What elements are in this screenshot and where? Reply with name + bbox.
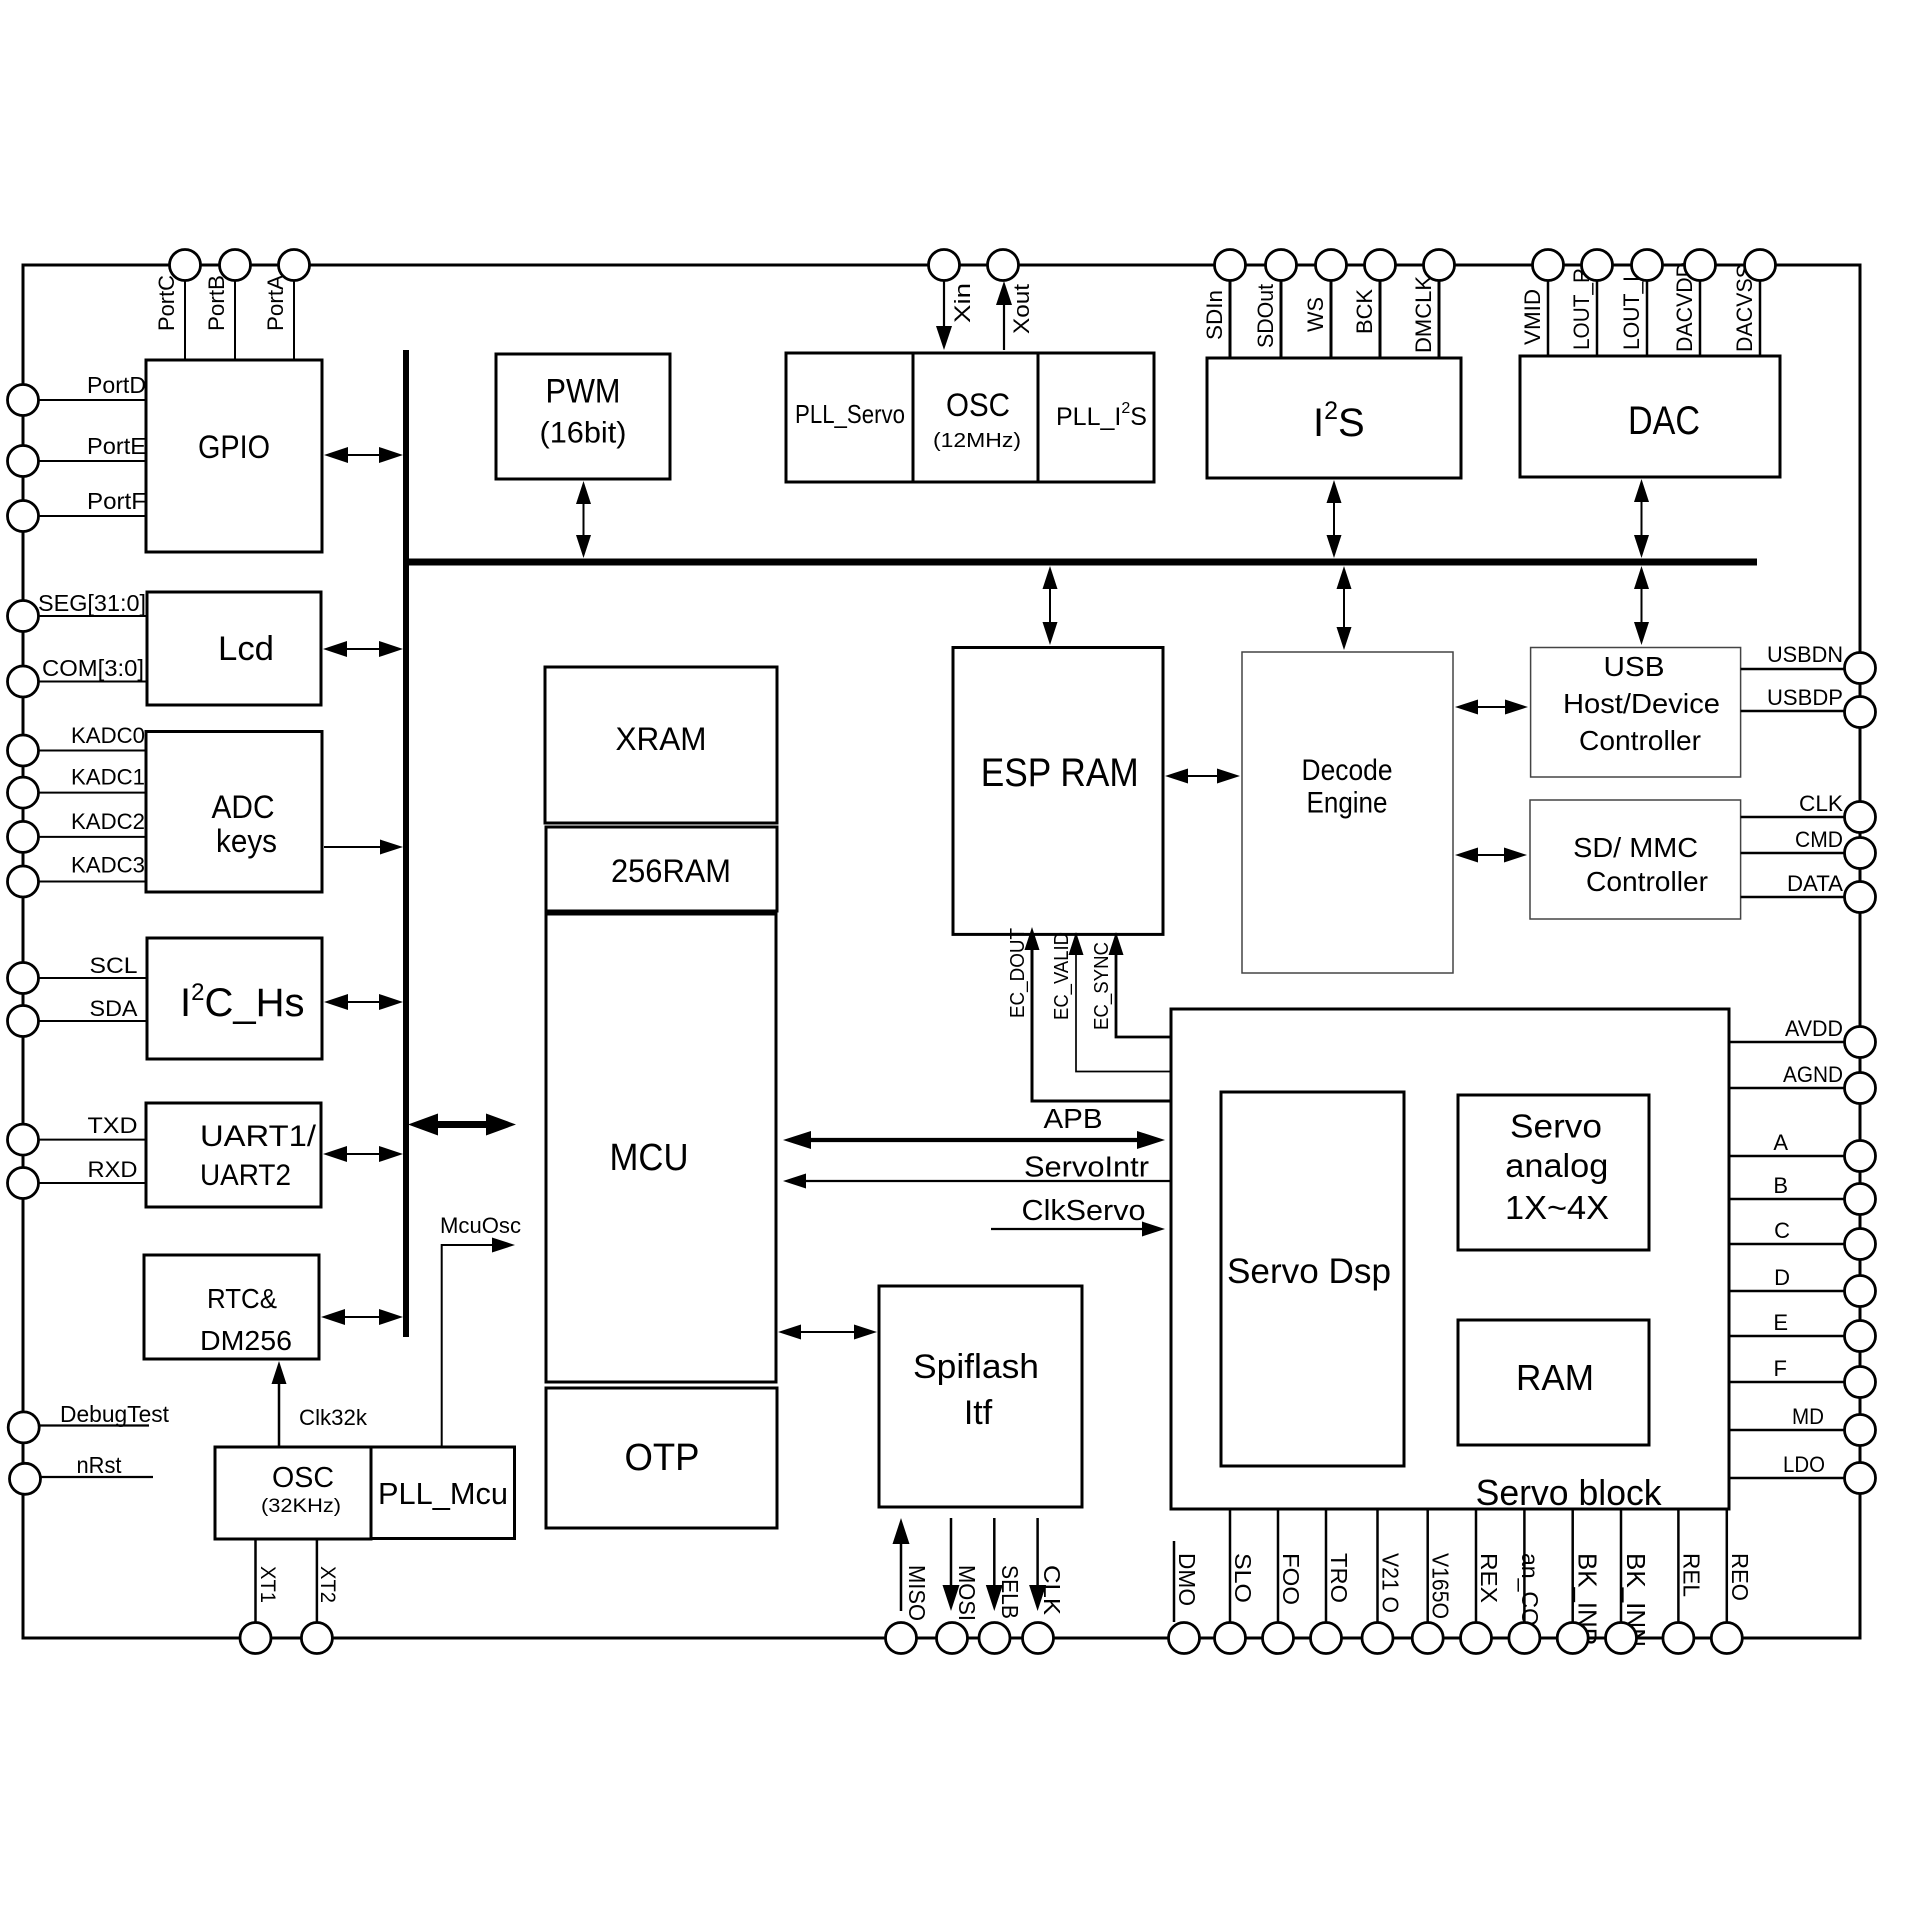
svg-text:F: F bbox=[1774, 1356, 1787, 1381]
svg-text:I2S: I2S bbox=[1313, 397, 1365, 445]
svg-text:PortF: PortF bbox=[87, 488, 146, 514]
svg-text:D: D bbox=[1774, 1265, 1790, 1290]
svg-text:OSC: OSC bbox=[272, 1462, 334, 1494]
svg-text:GPIO: GPIO bbox=[198, 429, 270, 465]
svg-text:an_CO: an_CO bbox=[1517, 1553, 1543, 1626]
svg-text:EC_VALID: EC_VALID bbox=[1051, 932, 1073, 1020]
svg-text:PortD: PortD bbox=[87, 372, 146, 398]
svg-text:RTC&: RTC& bbox=[207, 1283, 277, 1314]
svg-text:V21 O: V21 O bbox=[1378, 1553, 1404, 1613]
svg-text:1X~4X: 1X~4X bbox=[1505, 1189, 1609, 1226]
svg-text:(12MHz): (12MHz) bbox=[933, 430, 1021, 452]
svg-text:UART1/: UART1/ bbox=[200, 1120, 317, 1153]
svg-text:UART2: UART2 bbox=[200, 1159, 291, 1192]
svg-text:Xout: Xout bbox=[1009, 284, 1034, 334]
svg-text:TXD: TXD bbox=[88, 1113, 138, 1138]
svg-text:MISO: MISO bbox=[904, 1565, 930, 1621]
svg-text:KADC0: KADC0 bbox=[71, 723, 145, 748]
svg-text:CMD: CMD bbox=[1795, 827, 1843, 852]
svg-text:C: C bbox=[1774, 1218, 1790, 1243]
svg-text:PortB: PortB bbox=[204, 275, 229, 331]
svg-text:DMO: DMO bbox=[1174, 1553, 1200, 1606]
svg-text:A: A bbox=[1773, 1130, 1788, 1155]
svg-text:Host/Device: Host/Device bbox=[1563, 688, 1720, 719]
svg-text:PLL_I2S: PLL_I2S bbox=[1056, 400, 1147, 431]
svg-text:Decode: Decode bbox=[1302, 754, 1393, 787]
svg-text:256RAM: 256RAM bbox=[611, 853, 731, 889]
svg-text:PortE: PortE bbox=[87, 433, 146, 459]
svg-text:keys: keys bbox=[216, 823, 277, 859]
svg-text:MCU: MCU bbox=[610, 1137, 689, 1179]
svg-text:Clk32k: Clk32k bbox=[299, 1405, 368, 1430]
svg-text:APB: APB bbox=[1044, 1103, 1103, 1134]
svg-text:V165O: V165O bbox=[1428, 1553, 1454, 1619]
svg-text:REX: REX bbox=[1476, 1553, 1502, 1603]
svg-text:XRAM: XRAM bbox=[616, 721, 707, 757]
svg-text:REO: REO bbox=[1727, 1553, 1753, 1601]
svg-text:EC_DOUT: EC_DOUT bbox=[1007, 928, 1029, 1018]
svg-text:MD: MD bbox=[1792, 1404, 1824, 1429]
svg-text:DMCLK: DMCLK bbox=[1411, 276, 1436, 353]
svg-text:(32KHz): (32KHz) bbox=[261, 1496, 341, 1517]
svg-text:KADC3: KADC3 bbox=[71, 852, 145, 877]
svg-text:SD/ MMC: SD/ MMC bbox=[1573, 832, 1698, 863]
svg-text:PLL_Mcu: PLL_Mcu bbox=[378, 1476, 508, 1511]
svg-text:LOUT_L: LOUT_L bbox=[1619, 270, 1644, 350]
svg-text:FOO: FOO bbox=[1278, 1553, 1304, 1605]
svg-text:SCL: SCL bbox=[90, 953, 138, 978]
svg-text:SDA: SDA bbox=[90, 996, 138, 1021]
svg-text:TRO: TRO bbox=[1326, 1553, 1352, 1603]
svg-text:USB: USB bbox=[1604, 651, 1665, 682]
svg-text:SLO: SLO bbox=[1230, 1553, 1256, 1603]
svg-text:ClkServo: ClkServo bbox=[1022, 1195, 1146, 1227]
svg-text:(16bit): (16bit) bbox=[540, 417, 627, 450]
svg-text:ESP RAM: ESP RAM bbox=[981, 751, 1139, 795]
svg-text:Itf: Itf bbox=[964, 1394, 993, 1432]
svg-text:MOSI: MOSI bbox=[954, 1565, 980, 1621]
svg-text:Controller: Controller bbox=[1586, 866, 1708, 897]
svg-text:McuOsc: McuOsc bbox=[440, 1213, 521, 1238]
svg-text:Engine: Engine bbox=[1307, 787, 1388, 820]
svg-text:XT1: XT1 bbox=[256, 1566, 279, 1603]
svg-text:AGND: AGND bbox=[1783, 1062, 1843, 1087]
svg-text:RAM: RAM bbox=[1516, 1357, 1594, 1398]
svg-text:CLK: CLK bbox=[1799, 791, 1843, 816]
svg-text:BCK: BCK bbox=[1352, 289, 1377, 334]
svg-text:E: E bbox=[1773, 1310, 1788, 1335]
svg-text:KADC2: KADC2 bbox=[71, 809, 145, 834]
svg-text:DAC: DAC bbox=[1628, 399, 1700, 443]
svg-text:SEG[31:0]: SEG[31:0] bbox=[38, 590, 146, 616]
svg-text:USBDP: USBDP bbox=[1767, 685, 1843, 710]
svg-text:OTP: OTP bbox=[625, 1437, 700, 1479]
svg-text:Controller: Controller bbox=[1579, 725, 1701, 756]
svg-text:REL: REL bbox=[1678, 1553, 1704, 1597]
svg-text:Xin: Xin bbox=[950, 283, 975, 323]
svg-text:LDO: LDO bbox=[1783, 1452, 1825, 1477]
svg-text:AVDD: AVDD bbox=[1785, 1016, 1843, 1041]
svg-text:KADC1: KADC1 bbox=[71, 765, 145, 790]
svg-text:RXD: RXD bbox=[88, 1157, 138, 1182]
svg-text:Servo block: Servo block bbox=[1476, 1472, 1663, 1513]
svg-text:OSC: OSC bbox=[946, 387, 1010, 423]
svg-text:VMID: VMID bbox=[1520, 289, 1545, 345]
svg-text:WS: WS bbox=[1303, 297, 1328, 332]
svg-text:PortC: PortC bbox=[154, 275, 179, 331]
svg-text:COM[3:0]: COM[3:0] bbox=[42, 655, 144, 681]
svg-text:SDOut: SDOut bbox=[1253, 284, 1278, 348]
svg-text:PWM: PWM bbox=[546, 373, 621, 411]
svg-text:nRst: nRst bbox=[77, 1452, 123, 1478]
svg-text:Lcd: Lcd bbox=[218, 630, 274, 668]
svg-text:Spiflash: Spiflash bbox=[913, 1348, 1039, 1386]
svg-text:B: B bbox=[1773, 1173, 1788, 1198]
svg-text:USBDN: USBDN bbox=[1767, 642, 1843, 667]
svg-text:ADC: ADC bbox=[212, 789, 275, 825]
svg-text:ServoIntr: ServoIntr bbox=[1024, 1152, 1149, 1184]
svg-text:Servo Dsp: Servo Dsp bbox=[1227, 1252, 1391, 1291]
svg-text:SELB: SELB bbox=[997, 1565, 1023, 1619]
svg-text:PLL_Servo: PLL_Servo bbox=[795, 399, 905, 429]
svg-text:CLK: CLK bbox=[1039, 1565, 1065, 1616]
svg-text:DebugTest: DebugTest bbox=[60, 1401, 170, 1427]
svg-text:XT2: XT2 bbox=[316, 1566, 339, 1603]
svg-text:PortA: PortA bbox=[263, 275, 288, 331]
svg-text:DATA: DATA bbox=[1787, 871, 1843, 896]
svg-text:analog: analog bbox=[1505, 1147, 1608, 1184]
svg-text:EC_SYNC: EC_SYNC bbox=[1091, 942, 1113, 1030]
svg-text:SDIn: SDIn bbox=[1202, 290, 1227, 340]
svg-text:Servo: Servo bbox=[1510, 1108, 1602, 1145]
svg-text:DM256: DM256 bbox=[200, 1325, 292, 1356]
